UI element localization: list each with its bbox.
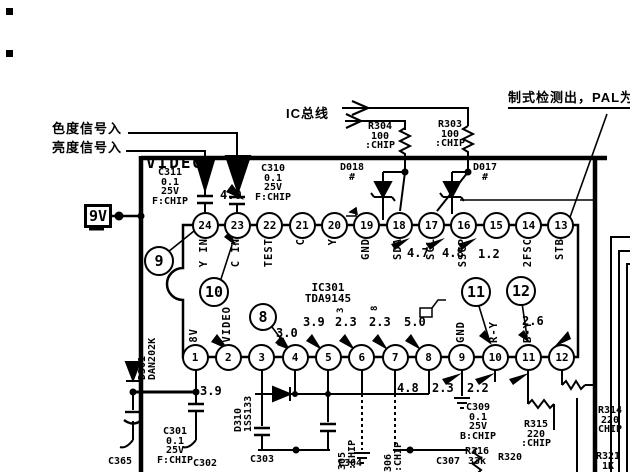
bus-lines <box>577 237 630 472</box>
voltage-pin6: 2.3 <box>335 317 357 328</box>
pin7-mark: 8 <box>371 306 381 311</box>
cap-c310-label: C310 0.1 25V F:CHIP <box>248 164 298 202</box>
res-r306-label: 306 :CHIP <box>384 442 403 472</box>
ic-pin-18: 18 <box>386 212 413 239</box>
ic-pin-23: 23 <box>224 212 251 239</box>
callout-8: 8 <box>249 303 277 331</box>
ic-pin-6: 6 <box>348 344 375 371</box>
pin-label-14: 2FSC <box>522 238 534 267</box>
ic-pin-13: 13 <box>547 212 574 239</box>
pin-label-16: SSCP <box>457 238 469 267</box>
cap-c365-label: C365 <box>100 457 140 467</box>
callout-11: 11 <box>461 277 491 307</box>
ic-pin-22: 22 <box>256 212 283 239</box>
callout-10: 10 <box>199 277 229 307</box>
pin-label-9: GND <box>455 321 467 343</box>
pin-label-19: GND <box>360 238 372 260</box>
ic-pin-4: 4 <box>282 344 309 371</box>
res-r316-label: R316 33k <box>460 447 494 466</box>
standard-detect-leader <box>569 114 607 220</box>
ic-pin-1: 1 <box>182 344 209 371</box>
supply-9v-badge: 9V <box>84 204 112 228</box>
ic-pin-20: 20 <box>321 212 348 239</box>
ic-pin-2: 2 <box>215 344 242 371</box>
ic-pin-24: 24 <box>192 212 219 239</box>
cap-c311-label: C311 0.1 25V F:CHIP <box>146 168 194 206</box>
cap-c303-label: C303 <box>242 455 282 465</box>
diode-d017-label: D017 # <box>464 163 506 182</box>
ic-pin-8: 8 <box>415 344 442 371</box>
pin-label-18: SDA <box>392 238 404 260</box>
ic-pin-11: 11 <box>515 344 542 371</box>
voltage-pin8: 5.0 <box>404 317 426 328</box>
chroma-input-label: 色度信号入 <box>52 121 122 136</box>
res-r320-label: R320 <box>492 453 528 463</box>
diode-d018-label: D018 # <box>331 163 373 182</box>
res-r314-label: R314 220 CHIP <box>590 406 630 435</box>
ic-ref-label: IC301 TDA9145 <box>296 282 360 304</box>
ic-pin-12: 12 <box>548 344 575 371</box>
luma-input-label: 亮度信号入 <box>52 140 122 155</box>
pin-label-13: STB <box>554 238 566 260</box>
pin-label-10: R-Y <box>488 321 500 343</box>
voltage-pin4: 3.0 <box>276 328 298 339</box>
res-r305-label: 305 :CHIP <box>338 440 357 470</box>
gnd-mark <box>346 208 357 216</box>
ic-pin-7: 7 <box>382 344 409 371</box>
voltage-pin2: 3.9 <box>200 386 222 397</box>
ic-pin-14: 14 <box>515 212 542 239</box>
ic-pin-3: 3 <box>248 344 275 371</box>
standard-detect-label: 制式检测出，PAL为 <box>508 90 630 109</box>
cap-c302-label: C302 <box>183 459 227 469</box>
res-r321-label: R321 1K <box>588 452 628 471</box>
voltage-pin10: 2.3 <box>432 383 454 394</box>
pin-label-22: TEST <box>263 238 275 267</box>
ic-pin-5: 5 <box>315 344 342 371</box>
res-r315-label: R315 220 :CHIP <box>514 420 558 449</box>
callout-9: 9 <box>144 246 174 276</box>
pin-label-17: SCL <box>425 238 437 260</box>
cap-c309-label: C309 0.1 25V B:CHIP <box>455 403 501 441</box>
voltage-pin5: 3.9 <box>303 317 325 328</box>
pin-label-20: Y <box>327 238 339 245</box>
voltage-pin7: 2.3 <box>369 317 391 328</box>
pin6-mark: 3 <box>337 308 347 313</box>
pin-label-23: C IN <box>230 238 242 267</box>
pin-label-21: C <box>295 238 307 245</box>
schematic-canvas: 色度信号入 亮度信号入 IC总线 制式检测出，PAL为 VIDEO 9V C31… <box>0 0 630 472</box>
ic-pin-16: 16 <box>450 212 477 239</box>
res-r303-label: R303 100 :CHIP <box>428 120 472 149</box>
scan-artifact <box>6 8 13 15</box>
ic-pin-17: 17 <box>418 212 445 239</box>
callout-12: 12 <box>506 276 536 306</box>
pin-label-11: B-Y <box>522 321 534 343</box>
pin-label-24: Y IN <box>198 238 210 267</box>
voltage-pin9: 4.8 <box>397 383 419 394</box>
ic-bus-label: IC总线 <box>286 106 329 121</box>
ic-pin-21: 21 <box>289 212 316 239</box>
ic-pin-15: 15 <box>483 212 510 239</box>
pin-label-2: VIDEO <box>221 306 233 343</box>
ic-pin-19: 19 <box>353 212 380 239</box>
diode-d310-label: D310 1SS133 <box>234 396 253 432</box>
pin-label-1: 8V <box>188 328 200 343</box>
ic-pin-10: 10 <box>482 344 509 371</box>
ic-pin-9: 9 <box>448 344 475 371</box>
voltage-pin23: 4.0 <box>220 190 242 201</box>
scan-artifact <box>6 50 13 57</box>
voltage-pin16: 1.2 <box>478 249 500 260</box>
diode-d301-label: D301 DAN202K <box>138 338 157 380</box>
res-r304-label: R304 100 :CHIP <box>358 122 402 151</box>
voltage-pin11: 2.2 <box>467 383 489 394</box>
